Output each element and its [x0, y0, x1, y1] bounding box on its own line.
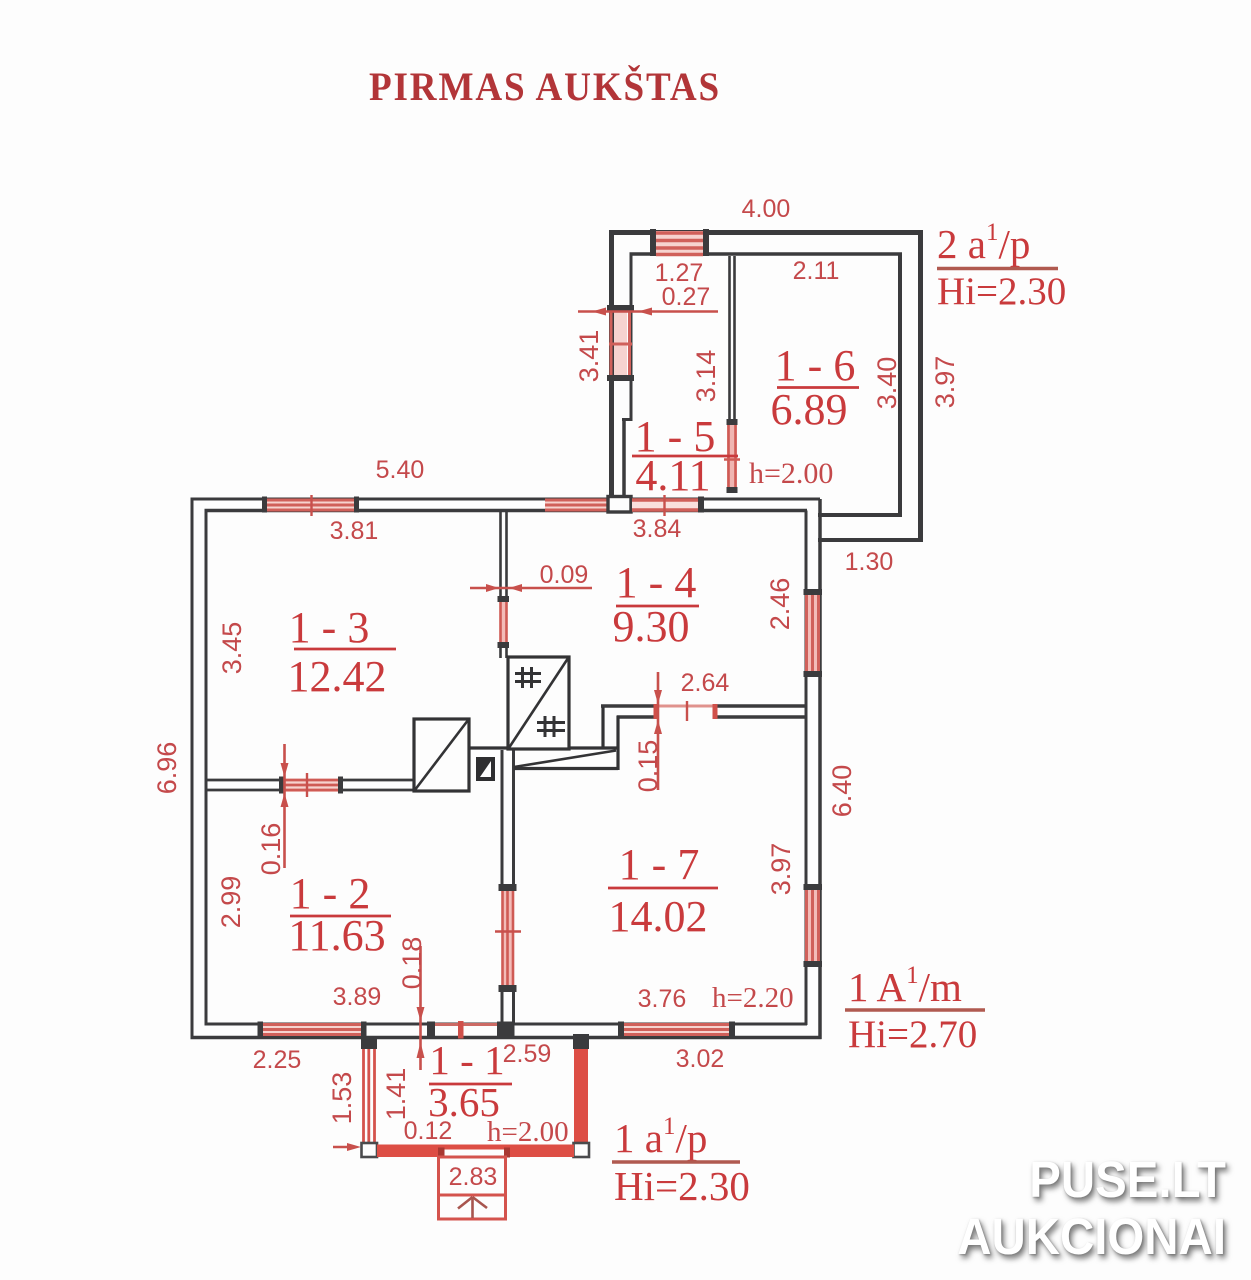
svg-text:3.45: 3.45: [217, 622, 247, 675]
svg-text:4.00: 4.00: [742, 195, 791, 223]
svg-text:1 A1/m: 1 A1/m: [848, 962, 962, 1010]
svg-text:12.42: 12.42: [288, 652, 387, 701]
svg-text:11.63: 11.63: [288, 911, 385, 960]
svg-text:6.89: 6.89: [771, 385, 848, 434]
svg-text:1 - 4: 1 - 4: [616, 558, 697, 607]
svg-text:h=2.20: h=2.20: [712, 982, 794, 1014]
svg-text:h=2.00: h=2.00: [487, 1116, 569, 1148]
svg-text:1 - 6: 1 - 6: [775, 341, 856, 390]
svg-text:1 - 1: 1 - 1: [429, 1037, 504, 1083]
svg-text:4.11: 4.11: [635, 451, 710, 500]
svg-text:3.89: 3.89: [333, 983, 382, 1011]
svg-text:1.53: 1.53: [327, 1072, 357, 1125]
svg-text:6.96: 6.96: [152, 742, 182, 795]
svg-text:0.16: 0.16: [256, 823, 286, 876]
svg-text:0.18: 0.18: [397, 937, 427, 990]
svg-text:5.40: 5.40: [376, 456, 425, 484]
svg-text:2.99: 2.99: [216, 876, 246, 929]
svg-text:0.09: 0.09: [540, 561, 589, 589]
svg-text:1.30: 1.30: [845, 548, 894, 576]
svg-text:2.64: 2.64: [681, 669, 730, 697]
svg-text:2.59: 2.59: [503, 1040, 552, 1068]
svg-text:Hi=2.70: Hi=2.70: [848, 1013, 977, 1056]
svg-text:3.97: 3.97: [766, 843, 796, 896]
svg-text:3.76: 3.76: [638, 985, 687, 1013]
svg-text:3.02: 3.02: [676, 1045, 725, 1073]
svg-text:6.40: 6.40: [827, 765, 857, 818]
svg-text:3.41: 3.41: [574, 330, 604, 383]
svg-text:0.27: 0.27: [662, 283, 711, 311]
svg-text:2.11: 2.11: [793, 257, 840, 285]
svg-text:9.30: 9.30: [613, 602, 690, 651]
svg-text:3.97: 3.97: [930, 356, 960, 409]
svg-text:h=2.00: h=2.00: [749, 457, 833, 490]
svg-text:2 a1/p: 2 a1/p: [937, 219, 1030, 267]
svg-text:1 - 3: 1 - 3: [289, 603, 370, 652]
svg-text:3.40: 3.40: [872, 357, 902, 410]
svg-text:3.14: 3.14: [691, 350, 721, 403]
svg-text:3.81: 3.81: [330, 517, 379, 545]
svg-text:1 - 7: 1 - 7: [619, 840, 700, 889]
svg-text:1.41: 1.41: [381, 1068, 411, 1121]
svg-text:2.46: 2.46: [765, 578, 795, 631]
svg-text:0.15: 0.15: [633, 740, 663, 793]
svg-text:PIRMAS AUKŠTAS: PIRMAS AUKŠTAS: [369, 64, 721, 109]
svg-text:14.02: 14.02: [609, 892, 708, 941]
svg-text:Hi=2.30: Hi=2.30: [937, 270, 1066, 313]
svg-text:2.25: 2.25: [253, 1046, 302, 1074]
svg-text:3.84: 3.84: [633, 515, 682, 543]
